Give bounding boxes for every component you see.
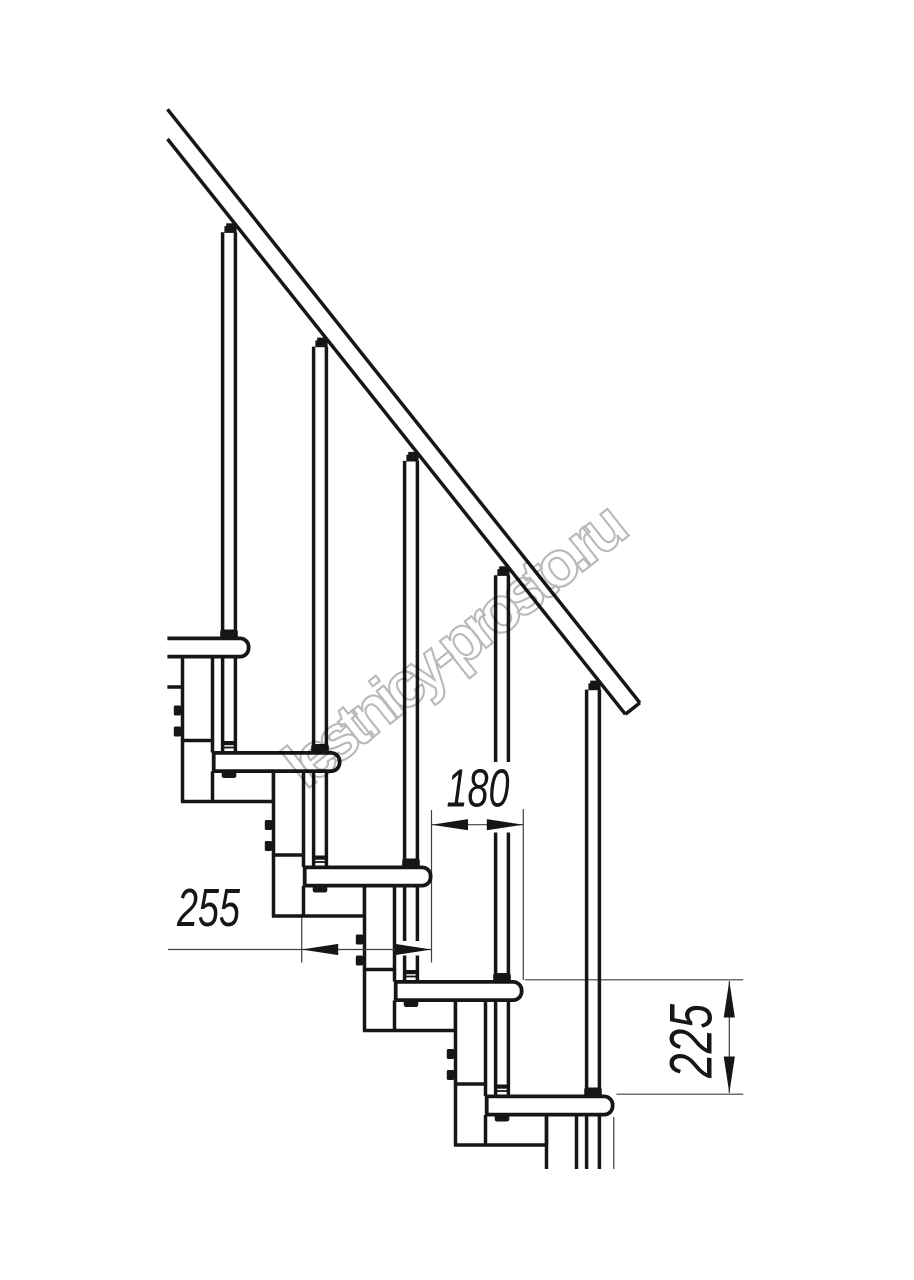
svg-text:225: 225 [658,1004,725,1079]
svg-text:180: 180 [447,759,510,819]
svg-text:255: 255 [176,878,240,938]
